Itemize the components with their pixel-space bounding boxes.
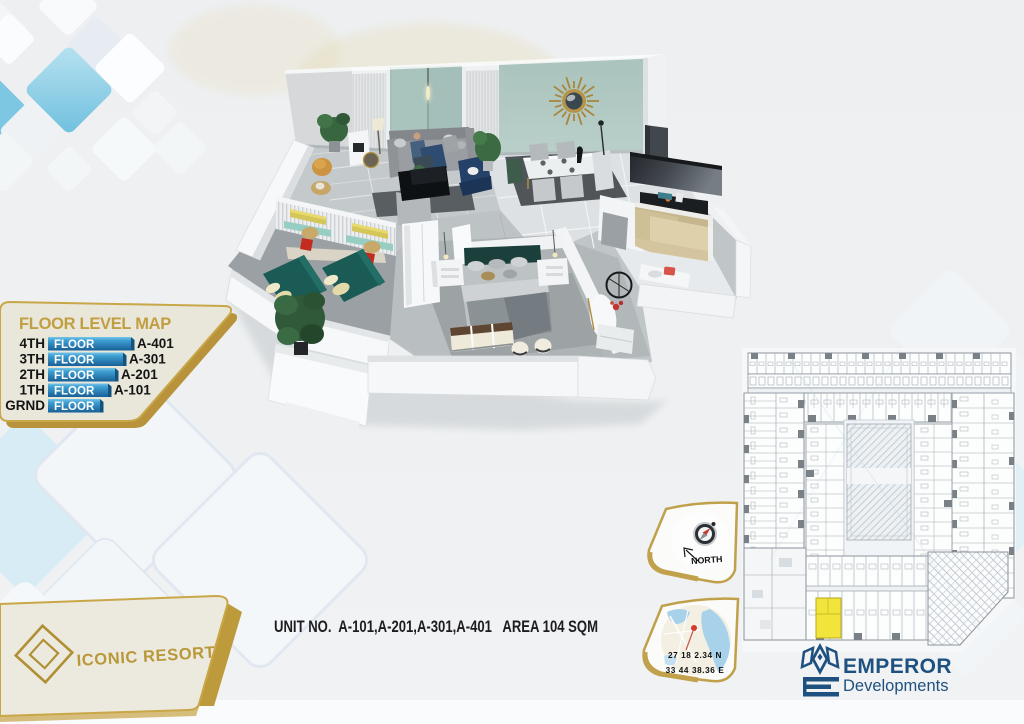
svg-text:FLOOR: FLOOR: [54, 355, 95, 367]
svg-text:33 44 38.36 E: 33 44 38.36 E: [666, 666, 725, 675]
svg-text:FLOOR: FLOOR: [54, 339, 95, 351]
svg-text:A-301: A-301: [129, 352, 166, 367]
svg-text:4TH: 4TH: [19, 336, 45, 351]
svg-text:FLOOR: FLOOR: [54, 370, 95, 382]
svg-text:UNIT NO. A-101,A-201,A-301,A-: UNIT NO. A-101,A-201,A-301,A-401 AREA 10…: [274, 618, 598, 636]
svg-text:Developments: Developments: [843, 677, 948, 695]
svg-text:FLOOR: FLOOR: [54, 401, 95, 413]
svg-text:GRND: GRND: [5, 398, 45, 413]
svg-text:3TH: 3TH: [19, 352, 45, 367]
svg-text:FLOOR LEVEL MAP: FLOOR LEVEL MAP: [19, 315, 171, 333]
svg-text:27 18 2.34 N: 27 18 2.34 N: [668, 651, 722, 660]
svg-text:1TH: 1TH: [19, 383, 45, 398]
svg-text:A-101: A-101: [114, 383, 151, 398]
svg-text:A-201: A-201: [121, 367, 158, 382]
svg-text:A-401: A-401: [137, 336, 174, 351]
svg-text:FLOOR: FLOOR: [54, 386, 95, 398]
svg-text:EMPEROR: EMPEROR: [843, 655, 952, 678]
svg-text:2TH: 2TH: [19, 367, 45, 382]
